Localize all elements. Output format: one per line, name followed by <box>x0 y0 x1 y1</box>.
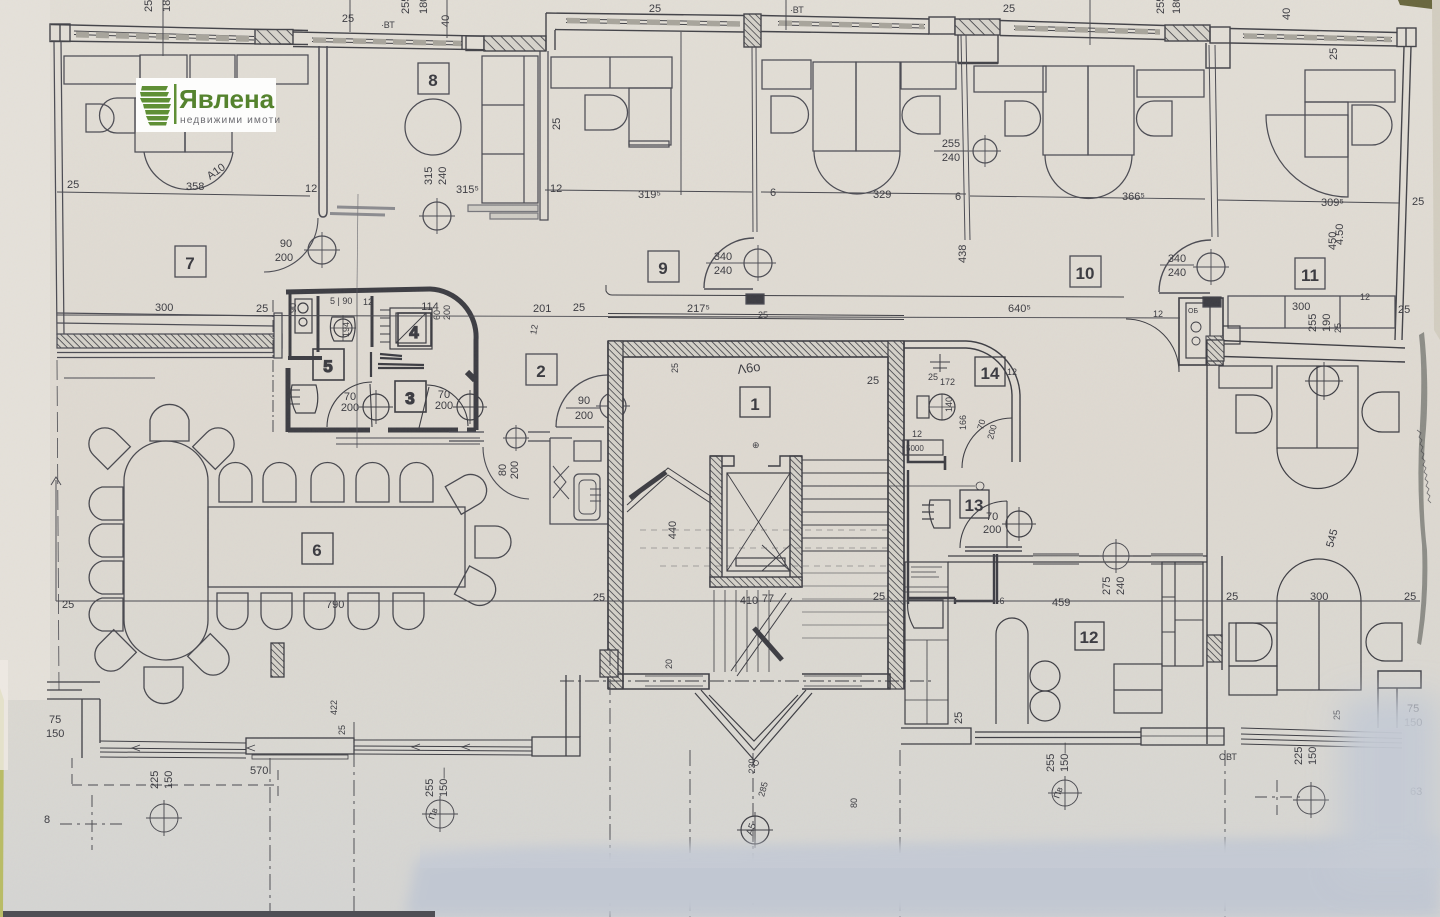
svg-text:недвижими имоти: недвижими имоти <box>180 115 281 126</box>
svg-text:Явлена: Явлена <box>179 84 275 114</box>
